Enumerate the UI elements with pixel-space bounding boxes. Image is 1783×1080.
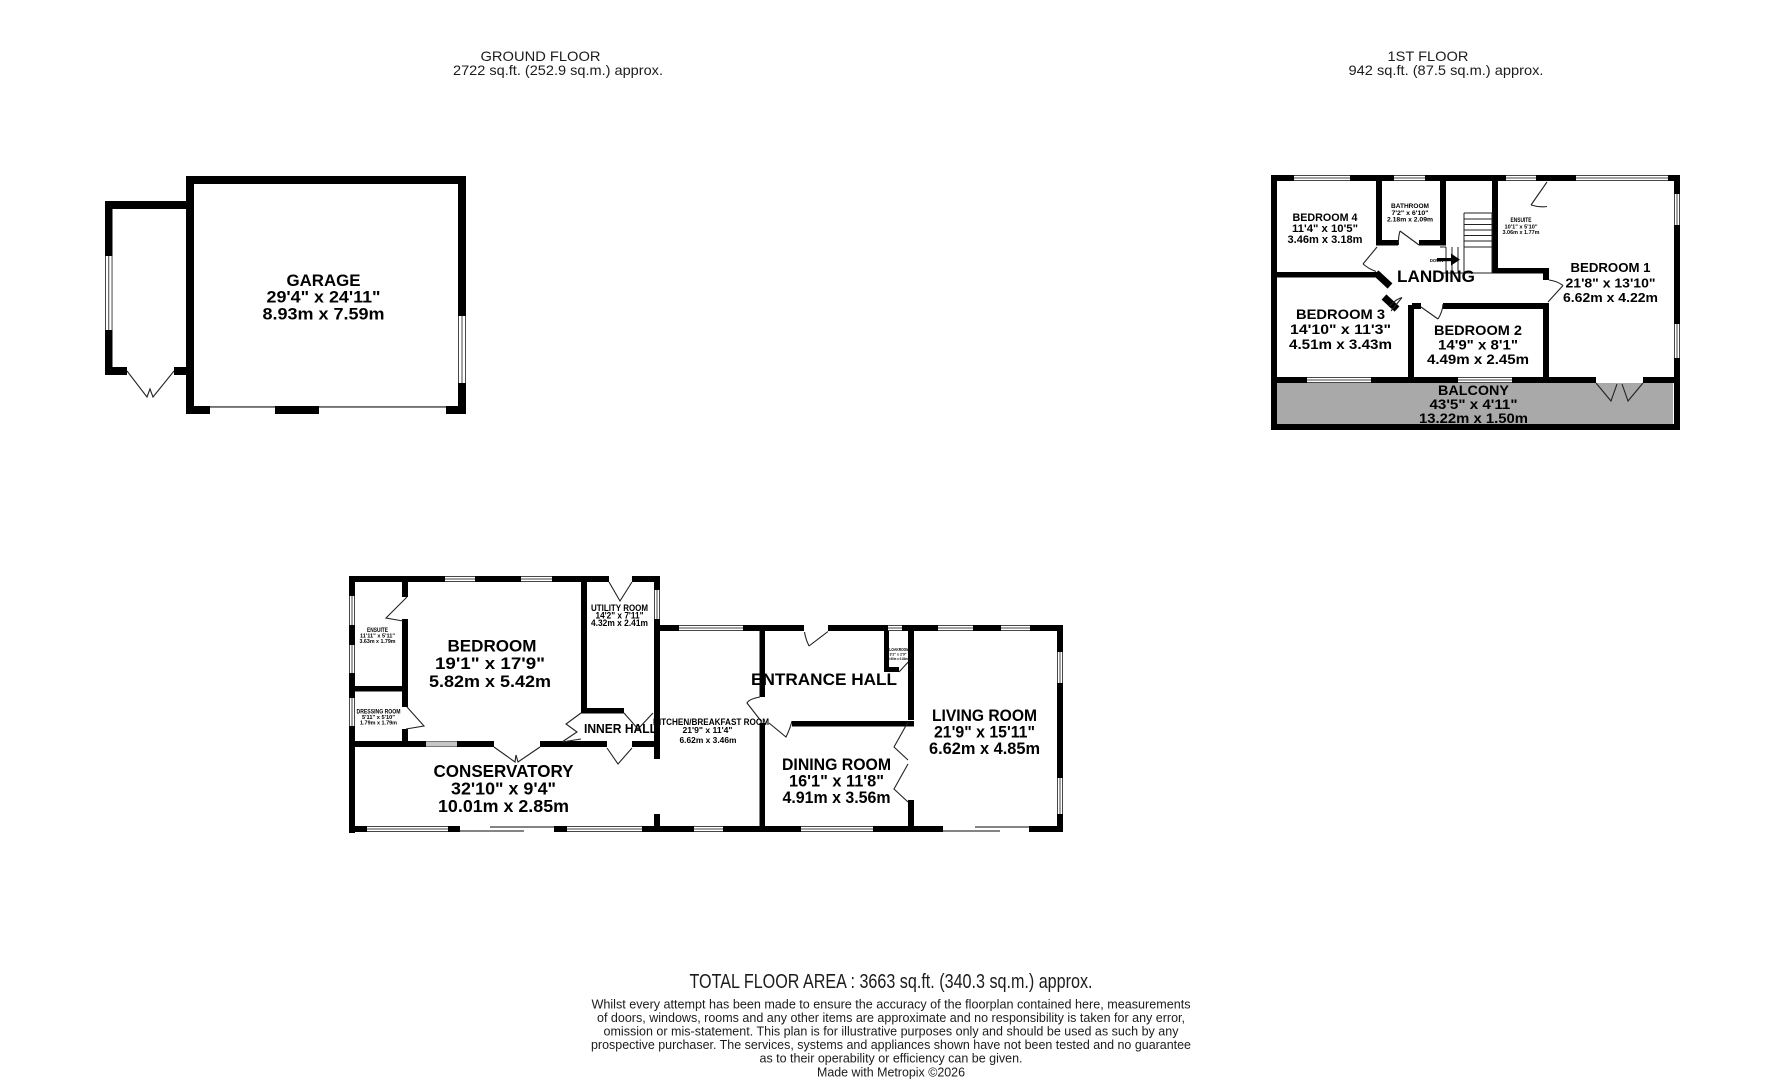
svg-text:0.96m x 0.84m: 0.96m x 0.84m: [888, 656, 908, 661]
svg-text:6.62m x 3.46m: 6.62m x 3.46m: [680, 736, 737, 745]
svg-text:BATHROOM: BATHROOM: [1391, 203, 1429, 210]
svg-text:2722 sq.ft. (252.9 sq.m.) appr: 2722 sq.ft. (252.9 sq.m.) approx.: [453, 62, 663, 78]
svg-text:ENTRANCE HALL: ENTRANCE HALL: [751, 670, 897, 689]
svg-text:21'8" x 13'10": 21'8" x 13'10": [1566, 276, 1656, 291]
svg-text:13.22m x 1.50m: 13.22m x 1.50m: [1419, 410, 1528, 426]
svg-text:prospective purchaser. The ser: prospective purchaser. The services, sys…: [591, 1038, 1191, 1052]
svg-text:10.01m x 2.85m: 10.01m x 2.85m: [438, 796, 569, 816]
svg-text:4.49m x 2.45m: 4.49m x 2.45m: [1427, 351, 1529, 367]
svg-text:6.62m x 4.85m: 6.62m x 4.85m: [929, 739, 1040, 758]
svg-text:as to their operability or eff: as to their operability or efficiency ca…: [760, 1052, 1023, 1066]
svg-text:4.32m x 2.41m: 4.32m x 2.41m: [591, 618, 648, 628]
svg-text:3.63m x 1.79m: 3.63m x 1.79m: [360, 639, 396, 645]
svg-text:21'9" x 11'4": 21'9" x 11'4": [683, 726, 733, 735]
svg-text:5.82m x 5.42m: 5.82m x 5.42m: [429, 672, 551, 691]
svg-text:19'1" x 17'9": 19'1" x 17'9": [435, 654, 545, 673]
svg-text:Made with Metropix ©2026: Made with Metropix ©2026: [817, 1066, 965, 1080]
svg-text:14'10" x 11'3": 14'10" x 11'3": [1290, 321, 1391, 337]
svg-text:BEDROOM: BEDROOM: [448, 637, 537, 656]
svg-text:DOWN: DOWN: [1430, 258, 1443, 263]
svg-text:1.79m x 1.79m: 1.79m x 1.79m: [360, 721, 397, 727]
svg-text:TOTAL FLOOR AREA : 3663 sq.ft.: TOTAL FLOOR AREA : 3663 sq.ft. (340.3 sq…: [690, 971, 1093, 993]
svg-text:Whilst every attempt has been: Whilst every attempt has been made to en…: [592, 998, 1191, 1012]
svg-text:6.62m x 4.22m: 6.62m x 4.22m: [1563, 290, 1658, 305]
svg-text:2.18m x 2.09m: 2.18m x 2.09m: [1387, 217, 1434, 224]
svg-text:BEDROOM 1: BEDROOM 1: [1571, 260, 1651, 275]
svg-text:3.46m x 3.18m: 3.46m x 3.18m: [1288, 234, 1363, 246]
svg-text:3.06m x 1.77m: 3.06m x 1.77m: [1503, 230, 1540, 236]
svg-text:942 sq.ft. (87.5 sq.m.) approx: 942 sq.ft. (87.5 sq.m.) approx.: [1349, 62, 1544, 78]
svg-text:8.93m x 7.59m: 8.93m x 7.59m: [263, 305, 385, 324]
svg-text:BEDROOM 3: BEDROOM 3: [1296, 306, 1385, 322]
svg-text:INNER HALL: INNER HALL: [584, 722, 657, 736]
svg-text:ENSUITE: ENSUITE: [1511, 218, 1532, 224]
svg-text:4.91m x 3.56m: 4.91m x 3.56m: [783, 788, 891, 807]
svg-text:of doors, windows, rooms and a: of doors, windows, rooms and any other i…: [597, 1011, 1185, 1025]
svg-text:4.51m x 3.43m: 4.51m x 3.43m: [1289, 336, 1392, 352]
svg-text:LANDING: LANDING: [1397, 267, 1475, 286]
svg-text:omission or mis-statement. Thi: omission or mis-statement. This plan is …: [604, 1025, 1180, 1039]
